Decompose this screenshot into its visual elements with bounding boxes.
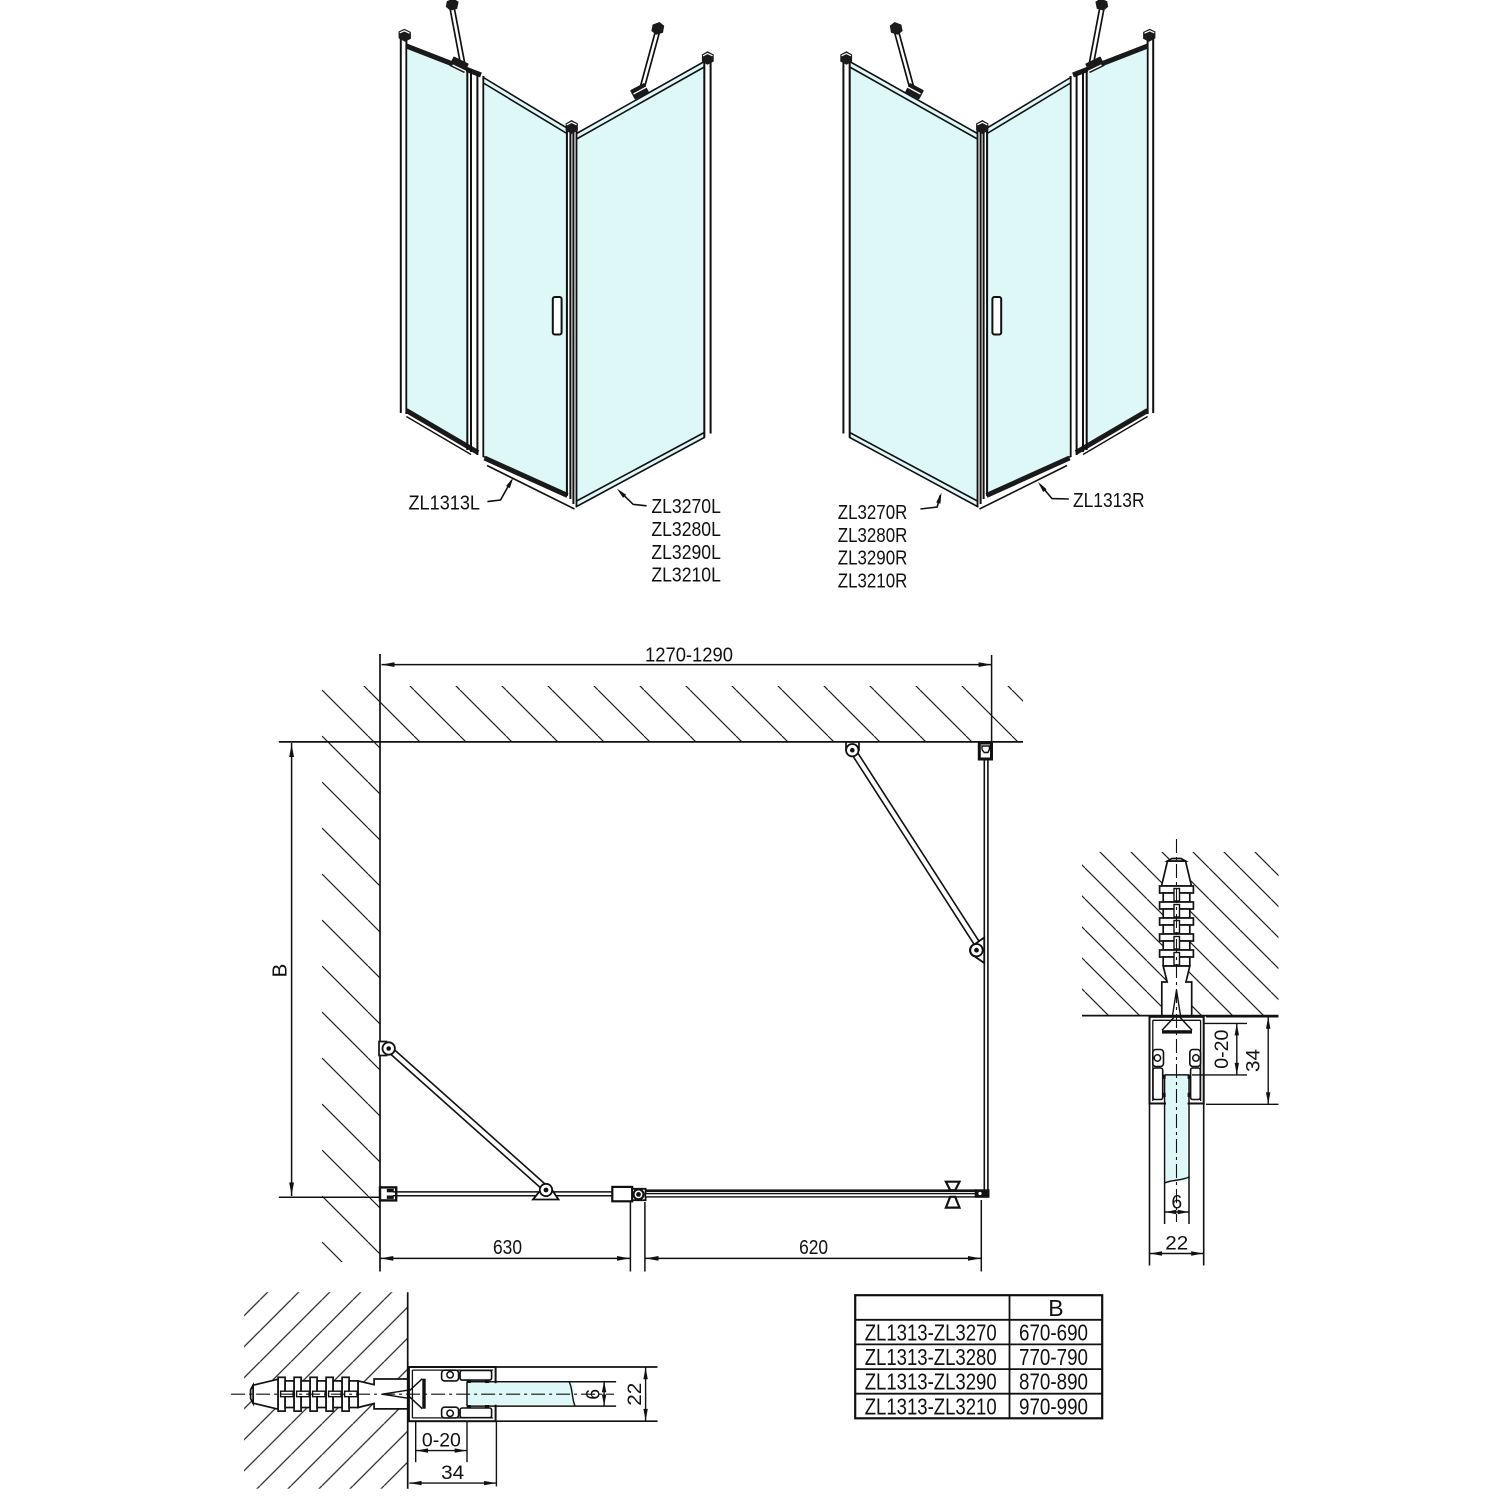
svg-text:630: 630: [493, 1236, 522, 1259]
svg-text:870-890: 870-890: [1019, 1369, 1088, 1395]
svg-text:ZL3280R: ZL3280R: [838, 524, 908, 547]
svg-text:970-990: 970-990: [1019, 1393, 1088, 1419]
svg-text:ZL3210R: ZL3210R: [838, 569, 908, 592]
svg-text:ZL1313R: ZL1313R: [1073, 489, 1145, 512]
svg-text:34: 34: [1243, 1049, 1265, 1072]
svg-text:22: 22: [1165, 1233, 1188, 1255]
svg-text:770-790: 770-790: [1019, 1344, 1088, 1370]
svg-text:ZL3280L: ZL3280L: [651, 518, 721, 541]
svg-text:ZL3270R: ZL3270R: [838, 501, 908, 524]
svg-text:1270-1290: 1270-1290: [645, 644, 733, 667]
svg-text:ZL1313-ZL3210: ZL1313-ZL3210: [865, 1393, 997, 1419]
svg-text:0-20: 0-20: [422, 1430, 461, 1452]
svg-text:22: 22: [624, 1383, 646, 1406]
svg-text:ZL1313L: ZL1313L: [409, 492, 481, 515]
svg-text:ZL3290L: ZL3290L: [651, 541, 721, 564]
svg-text:ZL3290R: ZL3290R: [838, 547, 908, 570]
svg-text:ZL1313-ZL3290: ZL1313-ZL3290: [865, 1369, 997, 1395]
svg-text:ZL3270L: ZL3270L: [651, 495, 721, 518]
svg-text:6: 6: [1171, 1192, 1182, 1214]
svg-text:34: 34: [441, 1462, 464, 1484]
svg-text:0-20: 0-20: [1211, 1030, 1233, 1069]
svg-text:ZL3210L: ZL3210L: [651, 564, 721, 587]
svg-text:6: 6: [583, 1389, 605, 1400]
svg-text:B: B: [1048, 1295, 1063, 1321]
svg-text:B: B: [269, 964, 292, 978]
svg-text:670-690: 670-690: [1019, 1319, 1088, 1345]
svg-text:ZL1313-ZL3280: ZL1313-ZL3280: [865, 1344, 997, 1370]
svg-text:620: 620: [799, 1236, 828, 1259]
svg-text:ZL1313-ZL3270: ZL1313-ZL3270: [865, 1319, 997, 1345]
